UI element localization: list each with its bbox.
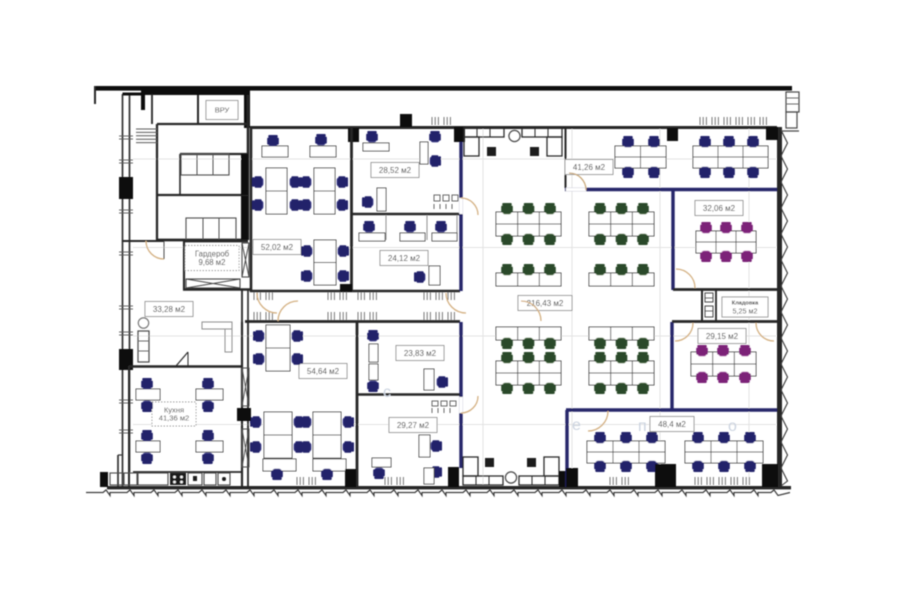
svg-text:54,64 м2: 54,64 м2: [307, 367, 340, 376]
svg-text:216,43 м2: 216,43 м2: [527, 299, 564, 308]
svg-text:48,4 м2: 48,4 м2: [658, 420, 686, 429]
svg-text:п: п: [638, 418, 647, 435]
svg-text:28,52 м2: 28,52 м2: [379, 166, 412, 175]
svg-text:29,15 м2: 29,15 м2: [706, 332, 739, 341]
svg-text:41,36 м2: 41,36 м2: [159, 414, 190, 423]
svg-text:о: о: [728, 418, 737, 435]
svg-text:ВРУ: ВРУ: [215, 106, 230, 115]
svg-text:5,25 м2: 5,25 м2: [733, 307, 758, 316]
svg-text:23,83 м2: 23,83 м2: [404, 349, 437, 358]
svg-text:с: с: [383, 384, 391, 401]
svg-text:41,26 м2: 41,26 м2: [573, 163, 606, 172]
svg-text:32,06 м2: 32,06 м2: [703, 204, 736, 213]
svg-text:9,68 м2: 9,68 м2: [198, 258, 225, 267]
svg-text:52,02 м2: 52,02 м2: [261, 243, 294, 252]
svg-text:24,12 м2: 24,12 м2: [388, 254, 421, 263]
svg-text:33,28 м2: 33,28 м2: [153, 305, 186, 314]
svg-text:е: е: [572, 417, 581, 434]
svg-text:29,27 м2: 29,27 м2: [397, 421, 430, 430]
